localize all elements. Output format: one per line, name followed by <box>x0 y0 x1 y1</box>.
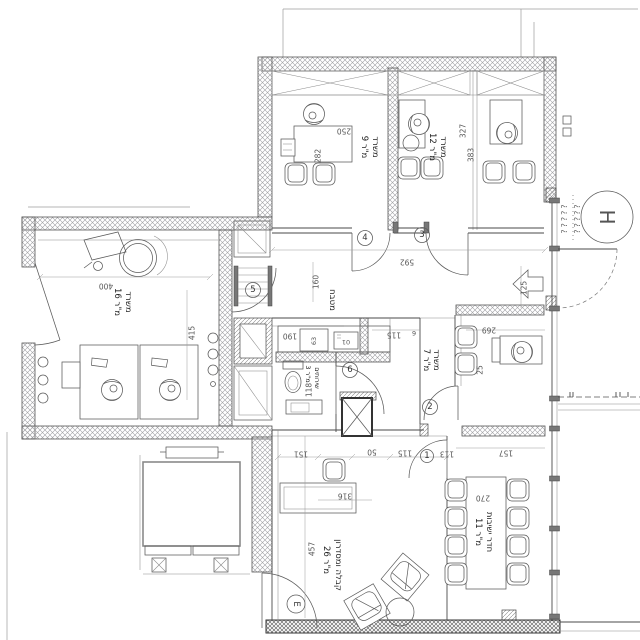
dim-383: 383 <box>467 148 476 163</box>
room-office-9 <box>281 104 352 186</box>
duct-shaft <box>342 398 372 436</box>
elevator-door <box>193 546 239 555</box>
dim-118: 118 <box>305 383 314 398</box>
dim-01: 01 <box>342 338 350 346</box>
elevator-car <box>143 462 240 546</box>
dim-190: 190 <box>283 332 298 341</box>
room-label-office-9: משרד <box>370 136 380 157</box>
room-area-office-12: 12 מ"ר <box>427 133 437 161</box>
entrance-tag: E <box>287 595 305 613</box>
dim-63: 63 <box>310 337 318 345</box>
room-office-top-right <box>483 100 535 183</box>
door-tag-5: 5 <box>246 283 261 298</box>
coil-marks: ????? <box>573 202 582 233</box>
dim-316: 316 <box>338 492 353 501</box>
dim-113: 113 <box>440 450 455 459</box>
counterweight <box>166 447 218 458</box>
dim-270: 270 <box>476 494 491 503</box>
dim-592: 592 <box>400 258 415 267</box>
elevator-door <box>145 546 191 555</box>
door-tag-4-label: 4 <box>362 233 367 243</box>
dim-400: 400 <box>99 282 114 291</box>
service-niche <box>234 221 272 420</box>
room-label-office-12: משרד <box>438 136 448 157</box>
room-label-kitchen: מטבח <box>327 289 337 311</box>
room-area-office-7: 7 מ"ר <box>421 349 431 372</box>
door-tag-4: 4 <box>358 231 373 246</box>
door-tag-6-label: 6 <box>347 365 352 375</box>
room-area-reception: 26 מ"ר <box>321 546 331 574</box>
dim-151: 151 <box>294 450 309 459</box>
dim-115-a: 115 <box>387 331 402 340</box>
hall-symbols: H ????? ????? <box>513 191 633 298</box>
door-tag-1-label: 1 <box>424 451 429 461</box>
dim-25: 25 <box>476 365 485 375</box>
door-tag-5-label: 5 <box>250 285 255 295</box>
room-office-7 <box>455 326 542 375</box>
dim-269: 269 <box>482 326 497 335</box>
pedestal <box>62 362 80 388</box>
elevator-hall-symbol: H <box>595 209 619 224</box>
pedestal <box>492 338 500 362</box>
coil-marks: ????? <box>560 202 569 233</box>
wheelchair-icon <box>84 232 167 277</box>
room-label-reception: קבלה ומסדרון <box>333 539 343 591</box>
dim-115-b: 115 <box>398 449 413 458</box>
phone <box>281 139 295 156</box>
toilet-bowl <box>285 372 301 393</box>
curtain-wall <box>550 116 640 621</box>
dim-250: 250 <box>337 127 352 136</box>
room-reception <box>280 459 429 630</box>
dim-415: 415 <box>188 326 197 341</box>
wc-sink <box>291 403 309 412</box>
lounge-chair <box>381 553 429 601</box>
floorplan-canvas: H ????? ????? משרד 9 מ"ר משרד 12 מ"ר משר… <box>0 0 640 640</box>
room-area-toilet: 3 מ"ר <box>304 365 312 382</box>
dim-327: 327 <box>459 124 468 139</box>
room-area-meeting: 11 מ"ר <box>473 518 483 546</box>
door-tag-2: 2 <box>423 400 438 415</box>
room-label-meeting: חדר ישיבות <box>484 512 494 552</box>
dim-125: 125 <box>520 281 529 296</box>
floor-plan-svg: H ????? ????? משרד 9 מ"ר משרד 12 מ"ר משר… <box>0 0 640 640</box>
entrance-tag-label: E <box>291 601 301 606</box>
door-3 <box>426 233 468 275</box>
door-tag-3: 3 <box>415 228 430 243</box>
door-tag-1: 1 <box>421 450 434 463</box>
bottom-facade-wall <box>266 620 640 633</box>
dim-6: 6 <box>412 329 416 337</box>
door-tag-3-label: 3 <box>419 230 424 240</box>
dim-282: 282 <box>314 149 323 164</box>
dim-50: 50 <box>367 448 377 457</box>
dim-160: 160 <box>312 275 321 290</box>
room-office-16 <box>38 232 218 419</box>
door-tag-2-label: 2 <box>427 402 432 412</box>
room-area-office-9: 9 מ"ר <box>359 136 369 159</box>
door-office-16 <box>35 263 60 345</box>
elevator <box>140 447 250 574</box>
room-area-office-16: 16 מ"ר <box>112 288 122 316</box>
dim-157: 157 <box>499 449 514 458</box>
room-label-office-16: משרד <box>123 291 133 312</box>
room-label-toilet: שירותים <box>313 367 321 389</box>
room-label-office-7: משרד <box>431 349 441 370</box>
dim-457: 457 <box>308 542 317 557</box>
